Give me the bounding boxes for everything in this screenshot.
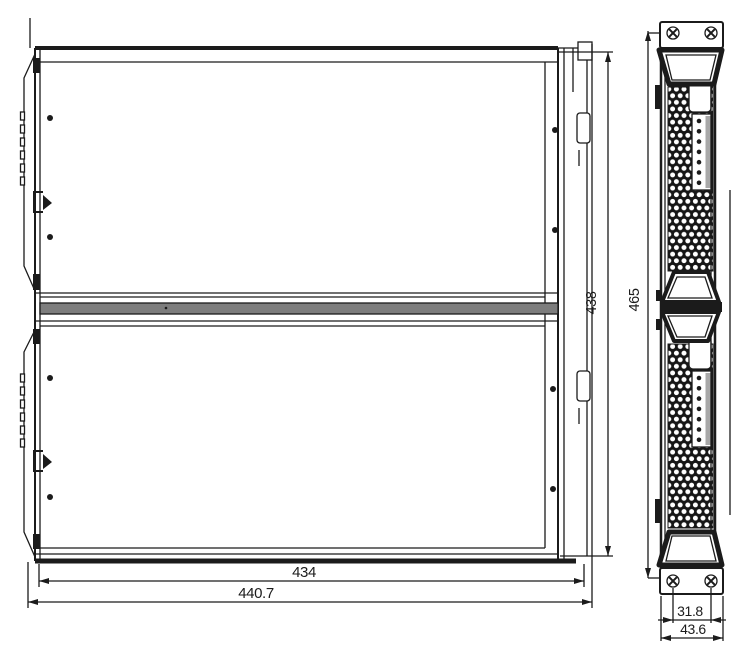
side-view xyxy=(655,22,730,594)
corner-clip xyxy=(33,274,40,290)
corner-clip xyxy=(33,329,40,344)
drawing-canvas: 434 440.7 438 465 xyxy=(0,0,750,655)
front-view xyxy=(21,18,593,566)
dim-label: 440.7 xyxy=(238,585,274,602)
dim-front-inner-width: 434 xyxy=(39,564,584,587)
phillips-screw-icon xyxy=(705,575,717,587)
side-tab xyxy=(655,499,662,523)
screw-dot-icon xyxy=(47,375,53,381)
dim-label: 31.8 xyxy=(677,603,703,619)
pull-handle-middle-upper xyxy=(662,272,719,302)
screw-dot-icon xyxy=(47,115,53,121)
front-middle-divider xyxy=(35,293,558,326)
dim-label: 434 xyxy=(292,564,316,581)
screw-dot-icon xyxy=(47,234,53,240)
front-lower-latch xyxy=(34,451,52,471)
mounting-bracket-top xyxy=(660,22,723,48)
pull-handle-middle-lower xyxy=(662,312,719,341)
mounting-bracket-bottom xyxy=(660,568,723,594)
dim-label: 465 xyxy=(627,288,643,311)
connector-strip-lower xyxy=(692,371,712,447)
pull-handle-top xyxy=(659,50,722,84)
front-upper-unit xyxy=(21,54,591,291)
side-tab xyxy=(655,85,662,109)
screw-dot-icon xyxy=(552,227,558,233)
phillips-screw-icon xyxy=(705,27,717,39)
front-lower-unit xyxy=(21,329,591,557)
phillips-screw-icon xyxy=(667,575,679,587)
rail-notch xyxy=(577,371,590,401)
rail-notch xyxy=(577,113,590,143)
engineering-drawing-sheet: 434 440.7 438 465 xyxy=(0,0,750,655)
screw-dot-icon xyxy=(550,486,556,492)
screw-dot-icon xyxy=(552,127,558,133)
corner-clip xyxy=(33,58,40,73)
screw-dot-icon xyxy=(47,494,53,500)
front-frame xyxy=(30,18,592,566)
screw-dot-icon xyxy=(550,386,556,392)
side-tab xyxy=(656,319,662,330)
corner-clip xyxy=(33,534,40,549)
pull-handle-bottom xyxy=(659,532,722,565)
divider-strip xyxy=(40,303,558,314)
phillips-screw-icon xyxy=(667,27,679,39)
connector-strip-upper xyxy=(692,114,712,190)
front-upper-latch xyxy=(34,192,52,212)
dim-label: 43.6 xyxy=(680,621,706,637)
dim-label: 438 xyxy=(584,291,600,314)
